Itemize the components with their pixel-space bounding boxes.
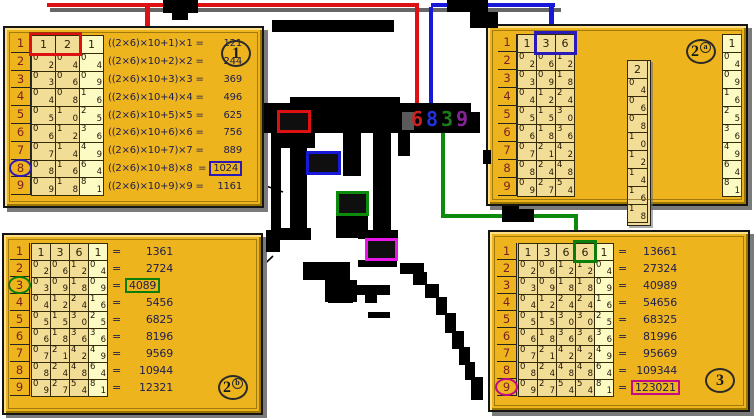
- cell-units-digit: 8: [641, 123, 646, 132]
- cell-tens-digit: 3: [557, 107, 562, 116]
- cell-tens-digit: 0: [520, 346, 525, 355]
- cell-units-digit: 8: [549, 133, 554, 142]
- header-digit: 2: [628, 61, 647, 78]
- obscured-working-mark: [368, 312, 390, 318]
- lattice-cell: 21: [536, 142, 556, 161]
- cell-tens-digit: 0: [33, 380, 38, 389]
- cell-tens-digit: 0: [33, 72, 38, 81]
- cell-units-digit: 5: [97, 115, 102, 124]
- lattice-cell: 42: [69, 345, 89, 363]
- cell-tens-digit: 1: [57, 161, 62, 170]
- step-highlight-box-green: [336, 191, 369, 216]
- formula-expression: ((2×6)×10+6)×6: [108, 127, 193, 138]
- lattice-cell: 14: [55, 142, 80, 161]
- napier-square-root-diagram: 1234567891210204040306090408160510250612…: [0, 0, 754, 418]
- lattice-header-cell: 6: [69, 243, 89, 261]
- result-row: =54656: [618, 294, 677, 311]
- cell-tens-digit: 0: [33, 178, 38, 187]
- cell-tens-digit: 6: [724, 161, 729, 170]
- cell-tens-digit: 2: [538, 179, 543, 188]
- result-value: 13661: [627, 245, 677, 258]
- cell-tens-digit: 0: [33, 161, 38, 170]
- lattice-cell: 18: [55, 177, 80, 196]
- cell-units-digit: 6: [735, 133, 740, 142]
- cell-units-digit: 4: [588, 302, 593, 311]
- lattice-cell: 05: [518, 311, 538, 329]
- lattice-cell: 27: [50, 379, 70, 397]
- cell-tens-digit: 1: [577, 278, 582, 287]
- index-digit: 5: [11, 106, 30, 124]
- obscured-working-mark: [172, 13, 188, 20]
- index-digit: 6: [497, 328, 516, 345]
- index-digit: 2: [497, 260, 516, 277]
- lattice-cell: 36: [555, 124, 575, 143]
- equals-sign: =: [112, 245, 121, 258]
- formula-result: 625: [207, 110, 242, 121]
- result-row: =81996: [618, 328, 677, 345]
- equals-sign: =: [112, 279, 121, 292]
- badge-letter: a: [700, 42, 711, 53]
- cell-tens-digit: 8: [596, 380, 601, 389]
- lattice-header-cell: 3: [537, 243, 557, 261]
- equals-sign: =: [112, 364, 121, 377]
- cell-units-digit: 5: [530, 115, 535, 124]
- cell-tens-digit: 1: [71, 261, 76, 270]
- cell-units-digit: 2: [63, 302, 68, 311]
- result-value: 68325: [627, 313, 677, 326]
- formula-expression: ((2×6)×10+2)×2: [108, 56, 193, 67]
- lattice-cell: 24: [556, 294, 576, 312]
- lattice-cell: 12: [537, 294, 557, 312]
- cell-units-digit: 8: [550, 336, 555, 345]
- lattice-cell: 05: [31, 311, 51, 329]
- lattice-cell: 81: [88, 379, 108, 397]
- cell-tens-digit: 1: [81, 89, 86, 98]
- cell-tens-digit: 0: [519, 53, 524, 62]
- cell-tens-digit: 0: [57, 89, 62, 98]
- panel-badge: 3: [705, 368, 735, 393]
- lattice-cell: 10: [627, 132, 648, 151]
- obscured-working-mark: [502, 206, 519, 222]
- cell-units-digit: 9: [607, 353, 612, 362]
- cell-tens-digit: 3: [71, 329, 76, 338]
- lattice-cell: 48: [556, 362, 576, 380]
- index-digit: 1: [498, 34, 516, 52]
- cell-units-digit: 9: [101, 285, 106, 294]
- lattice-cell: 12: [627, 150, 648, 169]
- cell-tens-digit: 0: [33, 329, 38, 338]
- formula-expression: ((2×6)×10+4)×4: [108, 92, 193, 103]
- cell-units-digit: 2: [550, 302, 555, 311]
- lattice-cell: 02: [31, 260, 51, 278]
- cell-units-digit: 2: [569, 353, 574, 362]
- equals-sign: =: [193, 56, 207, 67]
- cell-tens-digit: 0: [33, 89, 38, 98]
- obscured-working-mark: [163, 0, 198, 13]
- panel-3: 1234567891366102061212040309181809041224…: [488, 230, 750, 412]
- lattice-cell: 25: [88, 311, 108, 329]
- obscured-working-mark: [280, 228, 311, 240]
- cell-units-digit: 1: [101, 387, 106, 396]
- cell-tens-digit: 4: [557, 161, 562, 170]
- lattice-cell: 36: [88, 328, 108, 346]
- index-digit: 6: [10, 328, 29, 345]
- cell-tens-digit: 0: [90, 261, 95, 270]
- cell-tens-digit: 3: [81, 125, 86, 134]
- result-value: 40989: [627, 279, 677, 292]
- cell-units-digit: 2: [530, 61, 535, 70]
- cell-tens-digit: 0: [33, 363, 38, 372]
- lattice-cell: 05: [517, 106, 537, 125]
- equals-sign: =: [618, 364, 627, 377]
- cell-tens-digit: 4: [577, 363, 582, 372]
- formula-row: ((2×6)×10+7)×7 = 889: [108, 142, 242, 160]
- root-digit: 3: [441, 109, 453, 130]
- obscured-working-mark: [373, 128, 391, 240]
- header-highlight-box: [534, 31, 577, 55]
- cell-tens-digit: 3: [557, 125, 562, 134]
- cell-units-digit: 4: [97, 62, 102, 71]
- cell-tens-digit: 0: [52, 278, 57, 287]
- cell-tens-digit: 2: [539, 363, 544, 372]
- cell-tens-digit: 0: [520, 380, 525, 389]
- cell-tens-digit: 2: [81, 107, 86, 116]
- obscured-working-mark: [470, 12, 498, 28]
- cell-tens-digit: 1: [596, 295, 601, 304]
- cell-tens-digit: 0: [538, 71, 543, 80]
- result-value: 12321: [121, 381, 173, 394]
- cell-tens-digit: 2: [71, 295, 76, 304]
- lattice-cell: 09: [722, 70, 742, 89]
- cell-units-digit: 8: [569, 285, 574, 294]
- formula-row: ((2×6)×10+4)×4 = 496: [108, 88, 242, 106]
- lattice-cell: 48: [69, 362, 89, 380]
- panel-badge: 2b: [218, 375, 248, 400]
- lattice-cell: 36: [556, 328, 576, 346]
- cell-tens-digit: 4: [724, 143, 729, 152]
- cell-units-digit: 7: [63, 387, 68, 396]
- cell-units-digit: 2: [531, 268, 536, 277]
- cell-tens-digit: 3: [596, 329, 601, 338]
- formula-result: 1024: [209, 161, 242, 176]
- lattice-cell: 09: [50, 277, 70, 295]
- cell-units-digit: 9: [530, 187, 535, 196]
- cell-tens-digit: 4: [90, 346, 95, 355]
- cell-units-digit: 5: [549, 115, 554, 124]
- equals-sign: =: [193, 145, 207, 156]
- lattice-cell: 18: [536, 124, 556, 143]
- cell-units-digit: 4: [569, 302, 574, 311]
- cell-tens-digit: 5: [558, 380, 563, 389]
- cell-units-digit: 4: [73, 62, 78, 71]
- lattice-cell: 08: [31, 362, 51, 380]
- obscured-working-mark: [483, 150, 491, 164]
- cell-units-digit: 0: [73, 115, 78, 124]
- obscured-working-mark: [519, 209, 534, 222]
- result-row: =1361: [112, 243, 173, 260]
- cell-units-digit: 5: [607, 319, 612, 328]
- cell-units-digit: 6: [63, 268, 68, 277]
- lattice-cell: 25: [79, 106, 104, 125]
- lattice-cell: 04: [31, 88, 56, 107]
- napier-rod-2: 20406081012141618: [627, 60, 651, 226]
- lattice-cell: 81: [79, 177, 104, 196]
- cell-tens-digit: 1: [90, 295, 95, 304]
- index-digit: 7: [10, 345, 29, 362]
- cell-tens-digit: 6: [90, 363, 95, 372]
- cell-units-digit: 5: [49, 115, 54, 124]
- cell-tens-digit: 1: [629, 169, 634, 178]
- lattice-cell: 10: [55, 106, 80, 125]
- index-digit: 4: [498, 88, 516, 106]
- cell-units-digit: 5: [550, 319, 555, 328]
- cell-units-digit: 9: [97, 151, 102, 160]
- cell-units-digit: 8: [44, 370, 49, 379]
- cell-units-digit: 1: [63, 353, 68, 362]
- cell-tens-digit: 4: [558, 346, 563, 355]
- lattice-cell: 64: [594, 362, 614, 380]
- result-row: =9569: [112, 345, 173, 362]
- header-digit: 3: [538, 244, 556, 260]
- lattice-header-cell: 1: [88, 243, 108, 261]
- lattice-cell: 81: [722, 178, 742, 197]
- equals-sign: =: [193, 110, 207, 121]
- index-circle-magenta: [495, 378, 518, 396]
- header-digit: 1: [80, 36, 103, 53]
- cell-tens-digit: 0: [33, 346, 38, 355]
- cell-units-digit: 4: [549, 169, 554, 178]
- cell-tens-digit: 5: [557, 179, 562, 188]
- lattice-cell: 27: [536, 178, 556, 197]
- lattice-cell: 21: [50, 345, 70, 363]
- cell-tens-digit: 4: [71, 346, 76, 355]
- cell-tens-digit: 0: [519, 161, 524, 170]
- cell-units-digit: 7: [49, 151, 54, 160]
- cell-tens-digit: 1: [57, 107, 62, 116]
- cell-tens-digit: 3: [577, 312, 582, 321]
- cell-tens-digit: 0: [33, 312, 38, 321]
- obscured-working-mark: [271, 148, 281, 240]
- panel-2a: 1234567891360206120309180412240515300618…: [486, 24, 748, 206]
- equals-sign: =: [618, 381, 627, 394]
- cell-units-digit: 2: [568, 61, 573, 70]
- lattice-cell: 16: [88, 294, 108, 312]
- lattice-cell: 06: [517, 124, 537, 143]
- formula-row: ((2×6)×10+8)×8 = 1024: [108, 160, 242, 178]
- lattice-cell: 18: [575, 277, 595, 295]
- cell-tens-digit: 0: [539, 278, 544, 287]
- lattice-cell: 04: [31, 294, 51, 312]
- cell-tens-digit: 4: [558, 363, 563, 372]
- index-column: 123456789: [10, 243, 30, 396]
- cell-units-digit: 7: [44, 353, 49, 362]
- obscured-working-mark: [398, 133, 410, 156]
- index-digit: 2: [11, 53, 30, 71]
- lattice-cell: 09: [518, 379, 538, 397]
- panel-2b: 1234567891361020612040309180904122416051…: [2, 233, 263, 415]
- obscured-working-mark: [445, 313, 456, 333]
- cell-tens-digit: 1: [538, 89, 543, 98]
- root-digit: 8: [426, 109, 438, 130]
- lattice-cell: 07: [518, 345, 538, 363]
- cell-units-digit: 8: [82, 285, 87, 294]
- cell-tens-digit: 8: [724, 179, 729, 188]
- lattice-cell: 06: [31, 328, 51, 346]
- cell-units-digit: 9: [97, 79, 102, 88]
- equals-sign: =: [193, 38, 207, 49]
- root-digit: 6: [411, 109, 423, 130]
- formula-result: 1161: [207, 181, 242, 192]
- formula-expression: ((2×6)×10+1)×1: [108, 38, 193, 49]
- lattice-cell: 64: [79, 160, 104, 179]
- lattice-cell: 16: [594, 294, 614, 312]
- lattice-cell: 24: [537, 362, 557, 380]
- cell-tens-digit: 0: [519, 89, 524, 98]
- lattice-cell: 14: [627, 168, 648, 187]
- formula-row: ((2×6)×10+9)×9 = 1161: [108, 177, 242, 195]
- cell-tens-digit: 0: [81, 72, 86, 81]
- lattice-cell: 09: [31, 379, 51, 397]
- cell-units-digit: 8: [588, 370, 593, 379]
- lattice-cell: 06: [537, 260, 557, 278]
- cell-units-digit: 5: [63, 319, 68, 328]
- lattice-cell: 49: [88, 345, 108, 363]
- result-value: 1361: [121, 245, 173, 258]
- lattice-cell: 36: [79, 124, 104, 143]
- cell-units-digit: 2: [49, 62, 54, 71]
- lattice-cell: 24: [50, 362, 70, 380]
- obscured-working-mark: [343, 128, 361, 176]
- cell-units-digit: 8: [531, 370, 536, 379]
- lattice-cell: 30: [69, 311, 89, 329]
- lattice-cell: 48: [555, 160, 575, 179]
- result-row: =27324: [618, 260, 677, 277]
- index-digit: 1: [11, 35, 30, 53]
- cell-units-digit: 6: [550, 268, 555, 277]
- lattice-cell: 12: [536, 88, 556, 107]
- cell-units-digit: 6: [641, 195, 646, 204]
- result-value: 95669: [627, 347, 677, 360]
- lattice-cell: 12: [50, 294, 70, 312]
- cell-units-digit: 6: [73, 168, 78, 177]
- cell-tens-digit: 3: [558, 329, 563, 338]
- cell-units-digit: 4: [97, 168, 102, 177]
- cell-tens-digit: 6: [81, 161, 86, 170]
- cell-units-digit: 0: [588, 319, 593, 328]
- lattice-cell: 49: [594, 345, 614, 363]
- lattice-cell: 64: [88, 362, 108, 380]
- index-digit: 6: [498, 124, 516, 142]
- cell-tens-digit: 1: [558, 278, 563, 287]
- lattice-cell: 25: [722, 106, 742, 125]
- lattice-cell: 09: [594, 277, 614, 295]
- lattice-cell: 04: [518, 294, 538, 312]
- lattice-cell: 54: [575, 379, 595, 397]
- formula-expression: ((2×6)×10+5)×5: [108, 110, 193, 121]
- cell-tens-digit: 0: [724, 71, 729, 80]
- cell-tens-digit: 4: [596, 346, 601, 355]
- cell-tens-digit: 1: [71, 278, 76, 287]
- cell-units-digit: 6: [44, 336, 49, 345]
- cell-tens-digit: 5: [71, 380, 76, 389]
- result-row: =13661: [618, 243, 677, 260]
- index-digit: 2: [10, 260, 29, 277]
- cell-tens-digit: 2: [52, 380, 57, 389]
- index-circle-green: [8, 276, 31, 294]
- cell-units-digit: 4: [82, 387, 87, 396]
- formula-expression: ((2×6)×10+9)×9: [108, 181, 193, 192]
- lattice-cell: 18: [556, 277, 576, 295]
- result-row: =6825: [112, 311, 173, 328]
- lattice-cell: 06: [55, 71, 80, 90]
- cell-units-digit: 1: [97, 186, 102, 195]
- result-row: =2724: [112, 260, 173, 277]
- header-digit: 1: [595, 244, 613, 260]
- equals-sign: =: [618, 245, 627, 258]
- lattice-cell: 08: [55, 88, 80, 107]
- cell-tens-digit: 0: [596, 278, 601, 287]
- cell-tens-digit: 1: [629, 187, 634, 196]
- result-row: =8196: [112, 328, 173, 345]
- index-digit: 9: [498, 178, 516, 196]
- lattice-cell: 04: [517, 88, 537, 107]
- lattice-cell: 15: [536, 106, 556, 125]
- cell-tens-digit: 0: [520, 363, 525, 372]
- header-digit: 6: [70, 244, 88, 260]
- result-row: =10944: [112, 362, 173, 379]
- cell-units-digit: 4: [607, 268, 612, 277]
- lattice-cell: 81: [594, 379, 614, 397]
- step-highlight-box-magenta: [365, 238, 398, 261]
- cell-units-digit: 6: [97, 97, 102, 106]
- cell-units-digit: 8: [73, 97, 78, 106]
- equals-sign: =: [193, 92, 207, 103]
- lattice-cell: 18: [627, 204, 648, 223]
- cell-tens-digit: 0: [629, 115, 634, 124]
- cell-units-digit: 4: [530, 97, 535, 106]
- cell-tens-digit: 1: [558, 261, 563, 270]
- formula-row: ((2×6)×10+3)×3 = 369: [108, 71, 242, 89]
- index-digit: 8: [498, 160, 516, 178]
- cell-units-digit: 8: [568, 169, 573, 178]
- obscured-working-mark: [290, 133, 307, 240]
- obscured-working-mark: [425, 284, 439, 298]
- result-value: 109344: [627, 364, 677, 377]
- cell-units-digit: 3: [531, 285, 536, 294]
- index-digit: 1: [497, 243, 516, 260]
- panel-1: 1234567891210204040306090408160510250612…: [3, 26, 264, 208]
- cell-tens-digit: 0: [52, 261, 57, 270]
- cell-tens-digit: 1: [557, 71, 562, 80]
- lattice-cell: 54: [69, 379, 89, 397]
- cell-units-digit: 9: [531, 387, 536, 396]
- cell-tens-digit: 0: [519, 179, 524, 188]
- cell-units-digit: 5: [44, 319, 49, 328]
- lattice-header-cell: 1: [722, 34, 742, 53]
- cell-units-digit: 5: [531, 319, 536, 328]
- obscured-working-mark: [328, 285, 390, 295]
- cell-units-digit: 2: [641, 159, 646, 168]
- cell-units-digit: 4: [641, 87, 646, 96]
- lattice-cell: 07: [31, 142, 56, 161]
- index-digit: 9: [11, 177, 30, 195]
- header-highlight-box: [29, 32, 82, 56]
- lattice-cell: 49: [722, 142, 742, 161]
- cell-units-digit: 3: [530, 79, 535, 88]
- result-row: =40989: [618, 277, 677, 294]
- lattice-cell: 04: [79, 53, 104, 72]
- equals-sign: =: [112, 296, 121, 309]
